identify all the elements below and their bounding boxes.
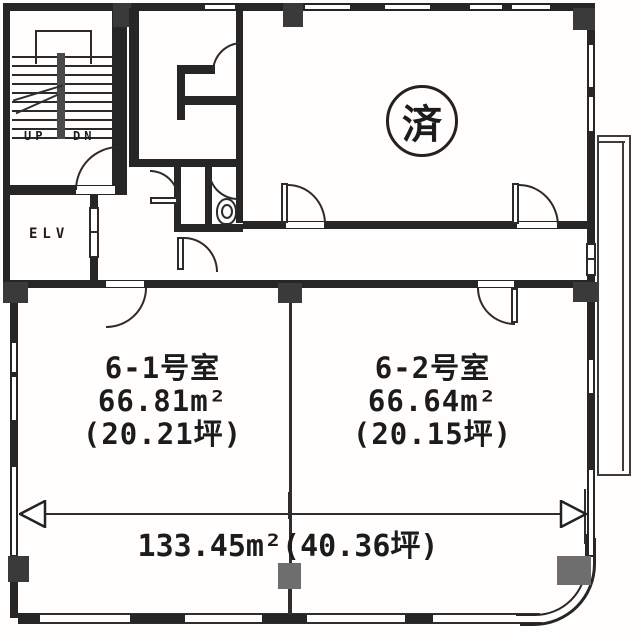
- elevator-label: ELV: [29, 226, 69, 242]
- window-segment: [12, 377, 16, 420]
- washroom-wall-bottom: [174, 224, 243, 232]
- stair-handrail: [57, 53, 65, 139]
- door-opening: [106, 281, 144, 287]
- room-6-2-label: 6-2号室 66.64m² (20.15坪): [325, 352, 540, 451]
- dimension-line: [38, 513, 566, 515]
- wall-segment: [130, 614, 185, 623]
- toilet-bowl-icon: [221, 204, 233, 219]
- column: [278, 283, 302, 303]
- balcony: [597, 135, 631, 476]
- dimension-text: 133.45m²(40.36坪): [108, 521, 468, 565]
- outer-wall-left-upper: [3, 3, 10, 288]
- duct-wall: [177, 65, 215, 74]
- room-area-m2: 66.81m²: [55, 385, 270, 418]
- washroom-wall-top: [129, 159, 243, 167]
- room-name: 6-2号室: [325, 352, 540, 385]
- floorplan-canvas: UP DN ELV 済: [0, 0, 640, 636]
- dimension-tick-center: [288, 492, 290, 519]
- room-area-tsubo: (20.15坪): [325, 418, 540, 451]
- window-segment: [205, 5, 235, 9]
- leased-stamp-label: 済: [402, 92, 442, 150]
- room-name: 6-1号室: [55, 352, 270, 385]
- balcony-inner-line: [599, 141, 625, 143]
- room-area-m2: 66.64m²: [325, 385, 540, 418]
- leased-stamp: 済: [386, 85, 458, 157]
- window-segment: [470, 5, 502, 9]
- column-gray: [278, 563, 301, 589]
- door-opening: [478, 281, 514, 287]
- window-segment: [512, 5, 550, 9]
- door-leaf: [281, 183, 288, 223]
- column: [283, 3, 303, 27]
- interior-wall: [129, 8, 139, 166]
- window-segment: [12, 343, 16, 372]
- wall-segment: [18, 613, 40, 624]
- elevator-door-line: [90, 231, 98, 233]
- room2-door-arc: [477, 288, 515, 325]
- wall-segment: [405, 614, 433, 623]
- column: [573, 282, 597, 302]
- column-gray: [557, 556, 591, 585]
- window-segment: [589, 97, 593, 131]
- service-door-arc: [212, 42, 242, 72]
- duct-wall: [177, 74, 185, 120]
- door-arc: [288, 184, 326, 224]
- wall-segment: [262, 614, 307, 623]
- outer-wall-left-bottom: [10, 582, 18, 618]
- balcony-inner-line: [622, 141, 624, 471]
- duct-wall: [185, 96, 240, 105]
- door-leaf: [177, 237, 184, 270]
- room-6-1-label: 6-1号室 66.81m² (20.21坪): [55, 352, 270, 451]
- wc-door-arc: [208, 170, 238, 200]
- door-leaf: [512, 183, 519, 224]
- balcony-door-line: [587, 258, 595, 260]
- window-segment: [12, 467, 16, 555]
- door-arc: [184, 237, 218, 272]
- up-label: UP: [24, 129, 46, 143]
- stairwell-door-arc: [75, 146, 119, 190]
- dimension-arrow-left-icon: [19, 500, 47, 528]
- door-arc: [519, 184, 559, 226]
- column: [3, 282, 28, 303]
- room-area-tsubo: (20.21坪): [55, 418, 270, 451]
- window-segment: [589, 45, 593, 87]
- room-partition: [288, 589, 292, 615]
- dimension-arrow-right-icon: [559, 500, 587, 528]
- window-segment: [385, 5, 430, 9]
- window-segment: [305, 5, 350, 9]
- dn-label: DN: [73, 129, 95, 143]
- window-segment: [589, 360, 593, 393]
- column: [8, 556, 29, 582]
- room1-door-arc: [106, 288, 147, 328]
- column: [573, 8, 595, 30]
